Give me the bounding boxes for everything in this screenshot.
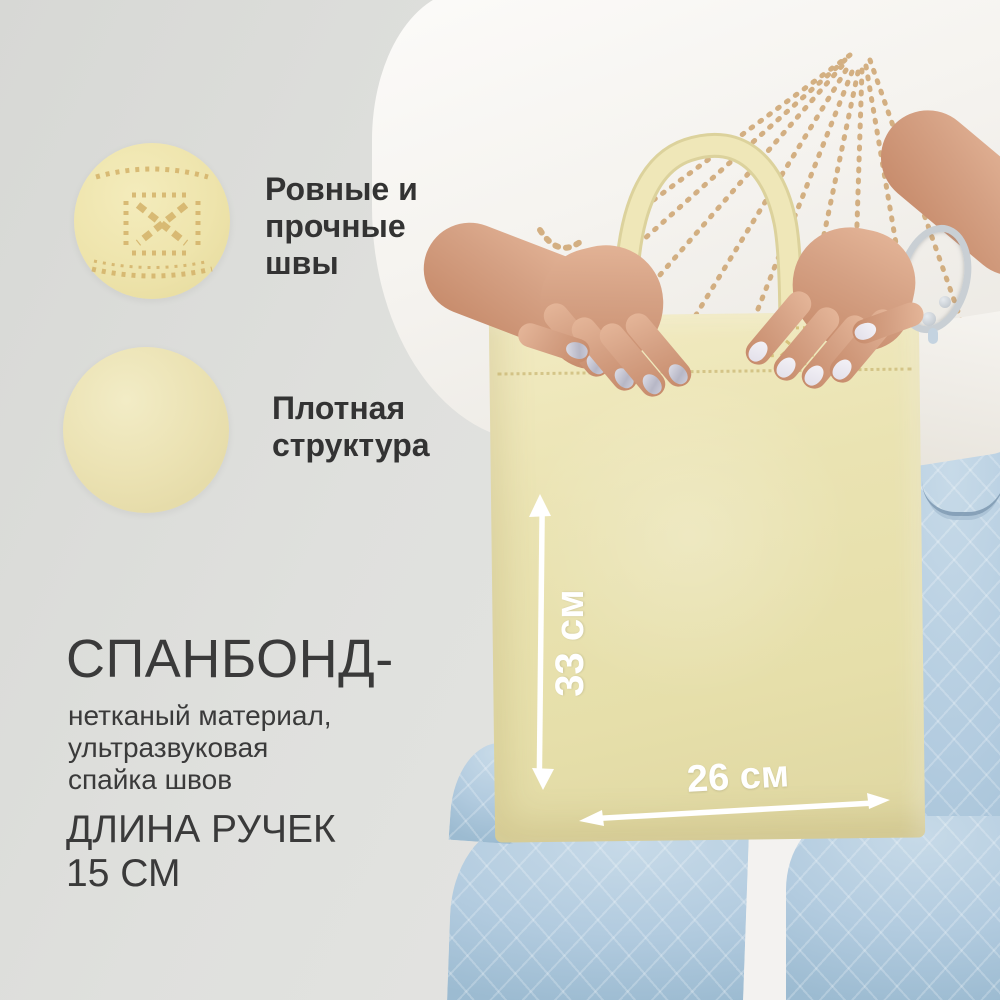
product-photo: 33 см 26 см Ровные и прочн — [0, 0, 1000, 1000]
detail-circle-seams — [74, 143, 230, 299]
seam-stitch-pattern-icon — [74, 143, 230, 299]
height-dimension-label: 33 см — [548, 583, 596, 703]
seams-annotation-label: Ровные и прочные швы — [265, 171, 418, 282]
width-dimension-label: 26 см — [662, 752, 814, 803]
handle-length-info: ДЛИНА РУЧЕК 15 СМ — [66, 808, 336, 896]
material-details: нетканый материал, ультразвуковая спайка… — [68, 700, 332, 796]
left-hand — [540, 244, 700, 414]
bracelet-charm — [922, 312, 936, 326]
detail-circle-texture — [63, 347, 229, 513]
bracelet-pendant — [928, 328, 938, 344]
bracelet-charm — [939, 296, 951, 308]
material-title: СПАНБОНД- — [66, 628, 394, 690]
right-hand — [758, 224, 918, 394]
texture-annotation-label: Плотная структура — [272, 390, 430, 464]
